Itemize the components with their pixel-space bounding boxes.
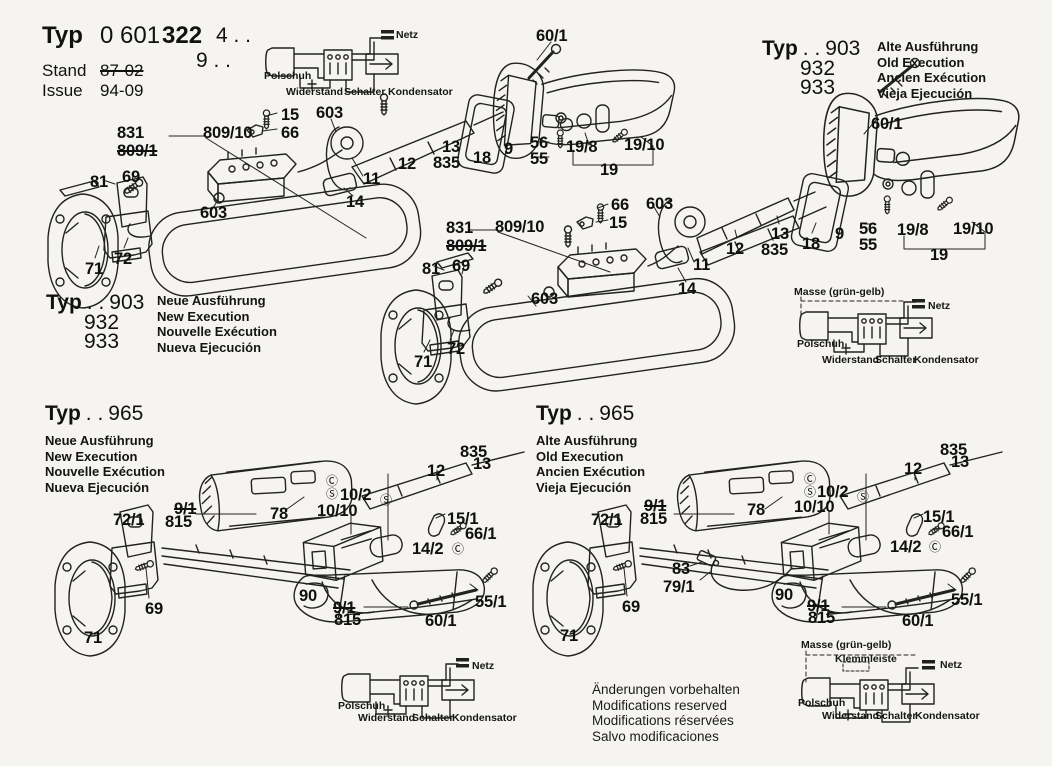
part-callout: 14/2 [412,540,443,559]
wiring-label-netz: Netz [928,300,950,312]
part-callout: 603 [531,290,558,309]
part-callout: 69 [452,257,470,276]
part-callout: 12 [398,155,416,174]
part-callout: 66 [281,124,299,143]
execution-line: Neue Ausführung [45,433,165,449]
execution-line: Old Execution [536,449,645,465]
model-number: 933 [84,330,119,354]
part-callout: 15 [281,106,299,125]
wiring-label-kondensator: Kondensator [452,712,517,724]
model-number: 965 [599,402,634,425]
model-number: 933 [800,76,835,100]
part-callout: 19/8 [897,221,928,240]
wiring-label-klemmleiste: Klemmleiste [835,653,897,665]
part-callout: 55 [530,150,548,169]
typ-label: Typ [46,291,82,314]
execution-line: Old Execution [877,55,986,71]
wiring-label-kondensator: Kondensator [915,710,980,722]
part-callout: 809/10 [203,124,252,143]
issue-label: Issue [42,81,83,101]
execution-line: Nueva Ejecución [45,480,165,496]
part-callout: 66/1 [942,523,973,542]
part-callout: 90 [299,587,317,606]
execution-line: Nouvelle Exécution [45,464,165,480]
part-callout: 79/1 [663,578,694,597]
execution-line: Alte Ausführung [536,433,645,449]
typ-number-bold: 322 [162,22,202,50]
disclaimer-line: Modifications réservées [592,713,740,729]
part-callout: 9 [504,140,513,159]
part-callout: 69 [145,600,163,619]
part-callout: 835 [761,241,788,260]
wiring-label-schalter: Schalter [875,354,916,366]
execution-lines-bottom-right: Alte Ausführung Old Execution Ancien Exé… [536,433,645,495]
execution-line: Ancien Exécution [877,70,986,86]
wiring-label-netz: Netz [940,659,962,671]
typ-dots: . . [86,402,104,425]
execution-line: Nueva Ejecución [157,340,277,356]
typ-label: Typ [42,22,83,50]
approval-mark-c: Ⓒ [452,540,464,557]
wiring-label-polschuh: Polschuh [797,338,844,350]
part-callout: 19/8 [566,138,597,157]
part-callout: 11 [363,170,380,189]
part-callout: 19 [600,161,618,180]
wiring-label-widerstand: Widerstand [286,86,343,98]
wiring-label-masse: Masse (grün-gelb) [794,286,884,298]
terminal-block-drawing [558,243,646,297]
variant-title-bottom-right: Typ. .965 [536,402,634,426]
part-callout: 55 [859,236,877,255]
field-wire-loops-drawing [454,274,739,396]
approval-mark-c: Ⓒ [929,538,941,555]
issue-value: 94-09 [100,81,143,101]
part-callout: 603 [200,204,227,223]
part-callout: 71 [560,627,578,646]
wiring-label-widerstand: Widerstand [822,354,879,366]
disclaimer-line: Änderungen vorbehalten [592,682,740,698]
part-callout: 60/1 [902,612,933,631]
parts-diagram-page: Typ 0 601 322 4 . . 9 . . Stand 87-02 Is… [0,0,1052,766]
part-callout: 831 [117,124,144,143]
wiring-label-widerstand: Widerstand [358,712,415,724]
disclaimer-line: Salvo modificaciones [592,729,740,745]
part-callout: 71 [84,629,102,648]
wiring-label-masse: Masse (grün-gelb) [801,639,891,651]
execution-line: Vieja Ejecución [536,480,645,496]
part-callout: 13 [951,453,969,472]
typ-label: Typ [45,402,81,425]
part-callout: 71 [414,353,432,372]
part-callout: 11 [693,256,710,275]
part-callout: 815 [165,513,192,532]
disclaimer-line: Modifications reserved [592,698,740,714]
part-callout: 603 [646,195,673,214]
approval-mark-s: Ⓢ [380,491,392,508]
part-callout: 60/1 [536,27,567,46]
part-callout: 72/1 [591,511,622,530]
typ-dots: . . [577,402,595,425]
wiring-label-polschuh: Polschuh [264,70,311,82]
part-callout: 60/1 [425,612,456,631]
typ-suffix-1: 4 . . [216,24,251,48]
part-callout: 12 [904,460,922,479]
part-callout: 13 [473,455,491,474]
part-callout: 55/1 [475,593,506,612]
execution-line: Vieja Ejecución [877,86,986,102]
wiring-label-schalter: Schalter [412,712,453,724]
part-callout: 12 [726,240,744,259]
wiring-label-kondensator: Kondensator [914,354,979,366]
stand-label: Stand [42,61,86,81]
part-callout: 66 [611,196,629,215]
wiring-label-schalter: Schalter [875,710,916,722]
part-callout: 815 [808,609,835,628]
approval-mark-s: Ⓢ [857,488,869,505]
execution-line: Neue Ausführung [157,293,277,309]
part-callout: 71 [85,260,103,279]
part-callout: 81 [422,260,440,279]
part-callout: 14/2 [890,538,921,557]
part-callout: 10/2 [340,486,371,505]
part-callout: 809/1 [117,142,157,161]
part-callout: 809/10 [495,218,544,237]
field-wire-loops-drawing [144,180,425,301]
part-callout: 90 [775,586,793,605]
part-callout: 60/1 [871,115,902,134]
part-callout: 19 [930,246,948,265]
part-callout: 14 [346,193,364,212]
part-callout: 78 [747,501,765,520]
approval-mark-s: Ⓢ [326,485,338,502]
part-callout: 69 [122,168,140,187]
part-callout: 66/1 [465,525,496,544]
part-callout: 815 [640,510,667,529]
execution-line: New Execution [157,309,277,325]
part-callout: 10/2 [817,483,848,502]
part-callout: 18 [473,149,491,168]
part-callout: 19/10 [624,136,664,155]
execution-line: New Execution [45,449,165,465]
wiring-label-kondensator: Kondensator [388,86,453,98]
execution-lines-bottom-left: Neue Ausführung New Execution Nouvelle E… [45,433,165,495]
variant-title-bottom-left: Typ. .965 [45,402,143,426]
typ-label: Typ [536,402,572,425]
wiring-schematic-topleft [266,30,398,92]
part-callout: 78 [270,505,288,524]
wiring-label-schalter: Schalter [344,86,385,98]
part-callout: 81 [90,173,108,192]
execution-line: Nouvelle Exécution [157,324,277,340]
disclaimer-block: Änderungen vorbehalten Modifications res… [592,682,740,744]
typ-label: Typ [762,37,798,60]
part-callout: 72 [114,250,132,269]
part-callout: 831 [446,219,473,238]
typ-number-light: 0 601 [100,22,160,50]
part-callout: 809/1 [446,237,486,256]
part-callout: 72/1 [113,511,144,530]
execution-line: Alte Ausführung [877,39,986,55]
wiring-label-polschuh: Polschuh [338,700,385,712]
model-number: 965 [108,402,143,425]
part-callout: 9 [835,225,844,244]
part-callout: 18 [802,235,820,254]
part-callout: 12 [427,462,445,481]
part-callout: 15 [609,214,627,233]
handle-housing-drawing [820,88,1020,208]
part-callout: 83 [672,560,690,579]
part-callout: 72 [447,340,465,359]
wiring-label-widerstand: Widerstand [822,710,879,722]
execution-line: Ancien Exécution [536,464,645,480]
part-callout: 835 [433,154,460,173]
execution-lines-mid-left: Neue Ausführung New Execution Nouvelle E… [157,293,277,355]
execution-lines-top-right: Alte Ausführung Old Execution Ancien Exé… [877,39,986,101]
part-callout: 69 [622,598,640,617]
part-callout: 55/1 [951,591,982,610]
wiring-label-netz: Netz [396,29,418,41]
part-callout: 19/10 [953,220,993,239]
stand-value: 87-02 [100,61,143,81]
approval-mark-s: Ⓢ [804,483,816,500]
part-callout: 603 [316,104,343,123]
part-callout: 815 [334,611,361,630]
wiring-label-polschuh: Polschuh [798,697,845,709]
typ-suffix-2: 9 . . [196,49,231,73]
part-callout: 14 [678,280,696,299]
wiring-label-netz: Netz [472,660,494,672]
